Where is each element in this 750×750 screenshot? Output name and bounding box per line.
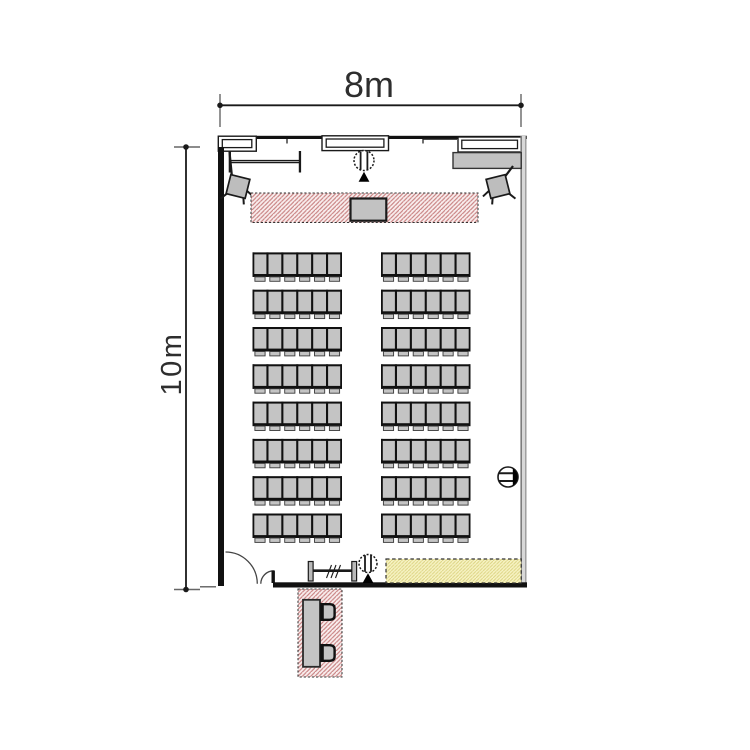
svg-text:10m: 10m xyxy=(156,332,188,396)
svg-text:8m: 8m xyxy=(344,64,394,105)
